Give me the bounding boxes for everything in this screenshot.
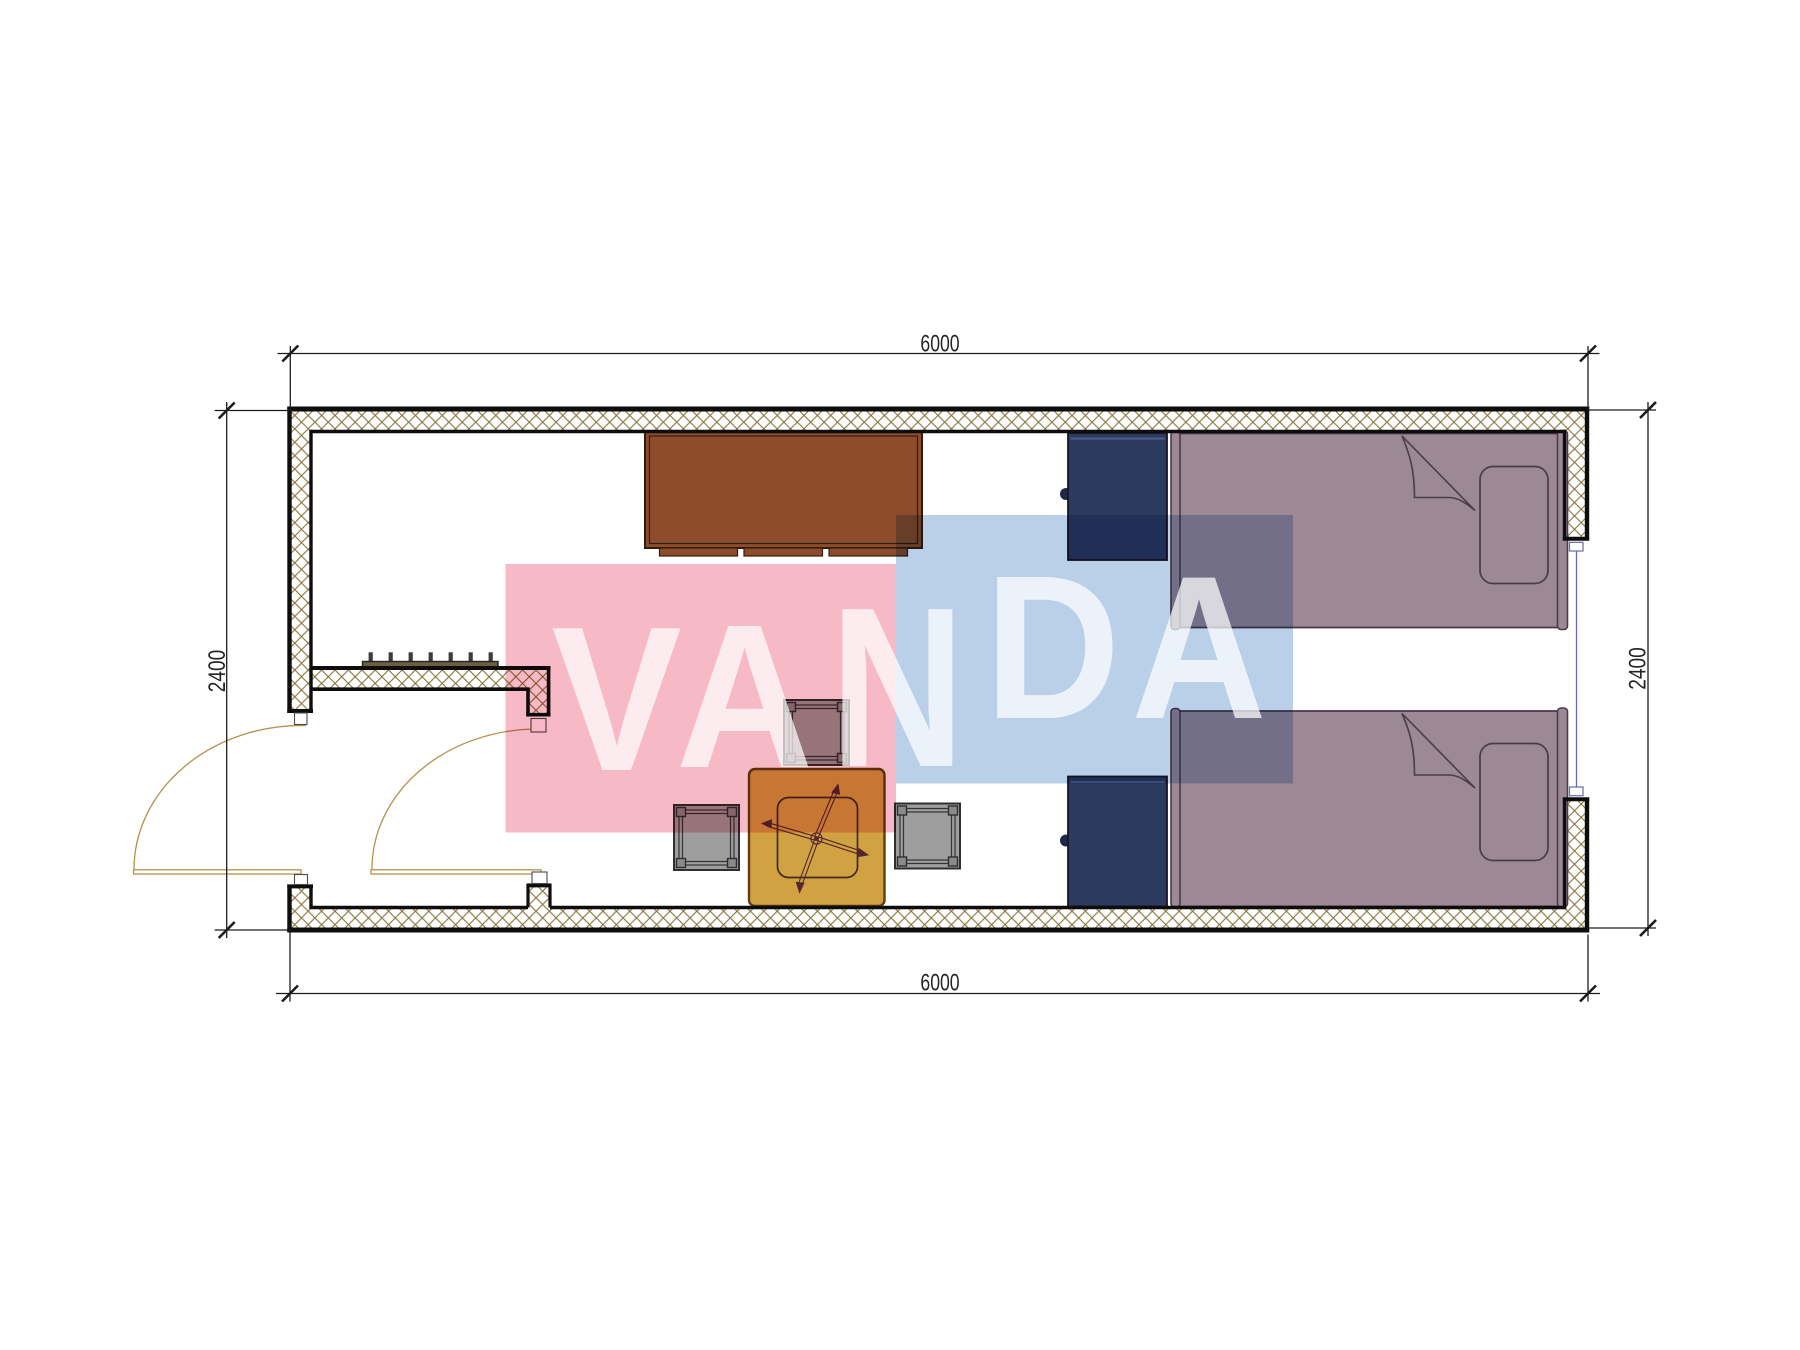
svg-text:V: V <box>551 583 682 814</box>
svg-text:N: N <box>830 560 965 815</box>
svg-text:D: D <box>985 532 1121 761</box>
svg-text:A: A <box>1131 534 1267 762</box>
svg-text:6000: 6000 <box>920 969 959 997</box>
svg-text:2400: 2400 <box>202 650 230 693</box>
svg-text:2400: 2400 <box>1623 647 1651 690</box>
svg-text:A: A <box>676 582 814 811</box>
svg-text:6000: 6000 <box>920 330 959 358</box>
